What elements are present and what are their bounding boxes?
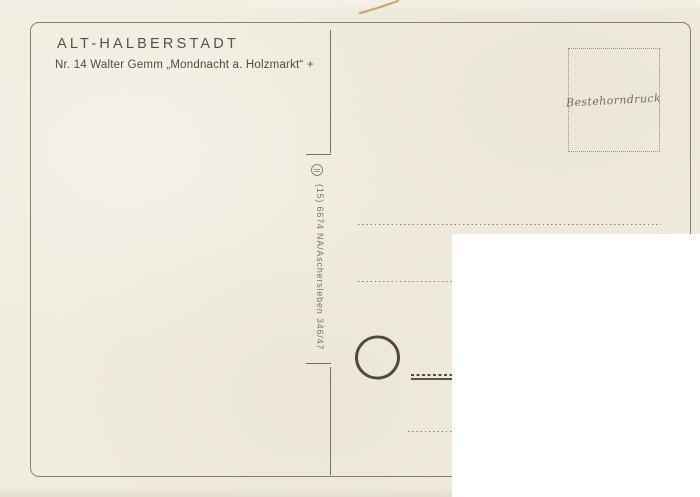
center-divider-lower: [330, 367, 331, 475]
divider-dash-upper: [306, 154, 331, 155]
address-line-3-rule: [411, 378, 453, 380]
publisher-imprint: (15) 6674 NA/Aschersleben 346/47: [315, 184, 325, 350]
address-line-3-dashes: [411, 374, 453, 376]
stamp-box: Bestehorndruck: [568, 48, 660, 152]
center-divider-upper: [330, 30, 331, 153]
divider-dash-lower: [306, 363, 331, 364]
card-subtitle: Nr. 14 Walter Gemm „Mondnacht a. Holzmar…: [55, 59, 314, 71]
card-title: ALT-HALBERSTADT: [57, 36, 239, 52]
address-line-2: [358, 281, 453, 282]
address-line-1: [358, 224, 661, 225]
scan-top-edge: [0, 0, 700, 11]
white-overlay-patch: [452, 234, 700, 497]
stamp-box-label: Bestehorndruck: [566, 91, 662, 109]
address-line-3: [411, 374, 453, 380]
scratch-mark: [358, 0, 418, 16]
publisher-logo-circle: [311, 164, 323, 176]
address-line-4: [408, 431, 453, 432]
